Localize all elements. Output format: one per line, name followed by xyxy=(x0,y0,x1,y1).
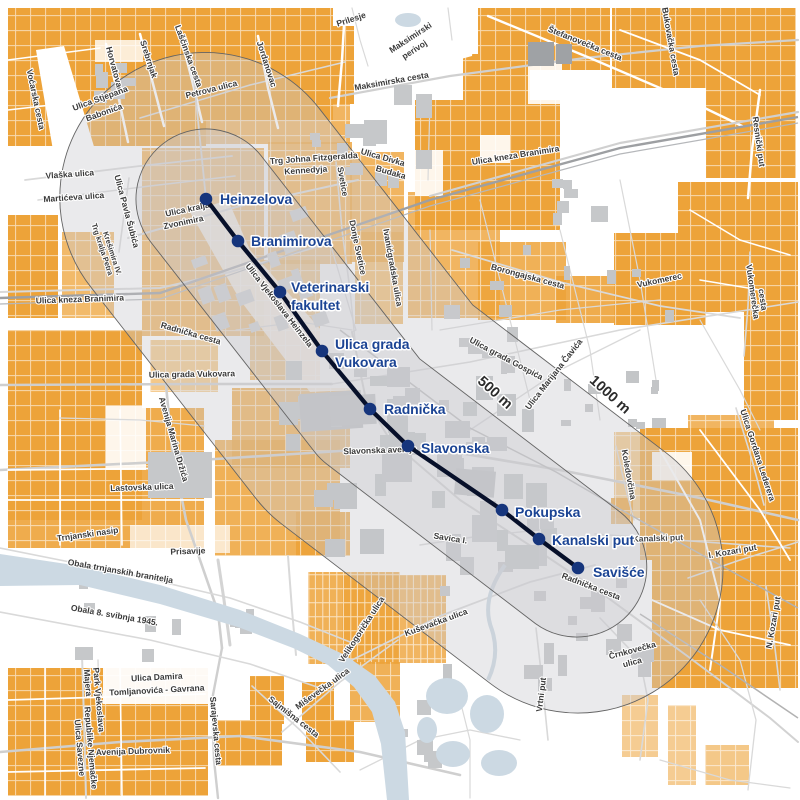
svg-text:Prisavije: Prisavije xyxy=(170,545,206,556)
svg-text:Ulica grada Vukovara: Ulica grada Vukovara xyxy=(149,368,236,380)
svg-text:Pokupska: Pokupska xyxy=(515,504,581,520)
svg-text:Kanalski put: Kanalski put xyxy=(552,532,634,548)
svg-text:Veterinarski: Veterinarski xyxy=(291,279,369,295)
svg-text:Slavonska: Slavonska xyxy=(421,440,490,456)
svg-text:Vukovara: Vukovara xyxy=(335,354,397,370)
svg-text:Kanalski put: Kanalski put xyxy=(632,532,683,544)
svg-text:Savišće: Savišće xyxy=(593,564,645,580)
svg-text:fakultet: fakultet xyxy=(291,297,340,313)
svg-text:Branimirova: Branimirova xyxy=(251,233,332,249)
svg-text:Heinzelova: Heinzelova xyxy=(220,191,292,207)
svg-text:Ulica grada: Ulica grada xyxy=(335,336,410,352)
svg-text:Radnička: Radnička xyxy=(384,401,446,417)
